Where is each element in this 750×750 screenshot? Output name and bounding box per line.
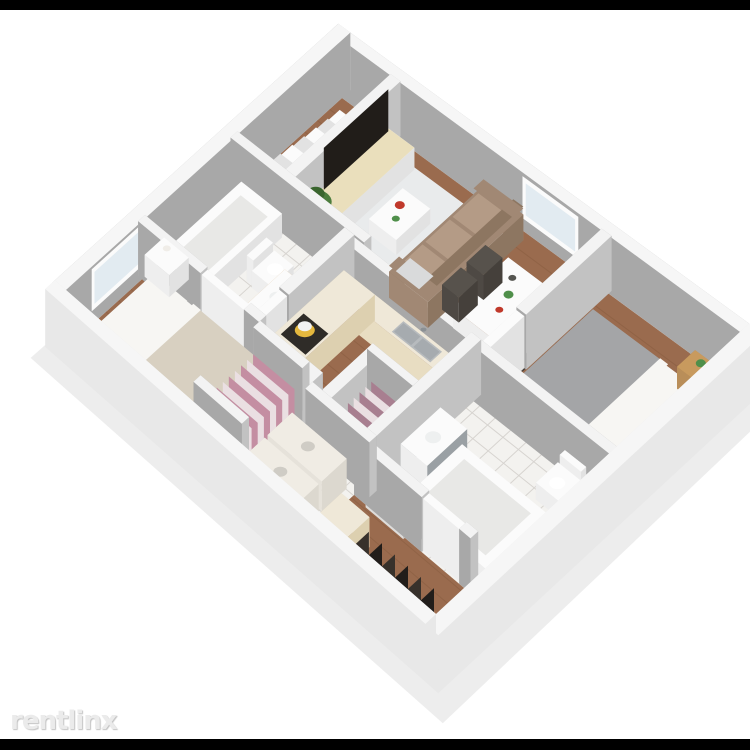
laundry-washer-door [301, 441, 315, 451]
wall-laundry-top-face [369, 436, 376, 498]
kitchen-pot-lid [298, 321, 312, 331]
coffee-table-book [395, 201, 405, 209]
watermark-rentlinx: rentlinx [10, 706, 117, 736]
dining-decor-cutlery [508, 275, 516, 281]
dining-decor-dish [495, 307, 503, 313]
floorplan-3d-render [0, 0, 750, 750]
coffee-table-plant [392, 216, 400, 222]
dining-decor-plant [504, 291, 514, 299]
top-letterbox-bar [0, 0, 750, 10]
bedroom1-nightstand-lamp [163, 245, 171, 251]
bottom-letterbox-bar [0, 739, 750, 750]
kitchen-faucet [421, 328, 427, 332]
bath2-toilet-seat [549, 477, 565, 489]
exterior-wall-southwest-face [425, 614, 436, 682]
apartment-scene [31, 24, 750, 724]
bath2-sink-basin [425, 431, 441, 443]
floorplan-screenshot: rentlinx [0, 0, 750, 750]
